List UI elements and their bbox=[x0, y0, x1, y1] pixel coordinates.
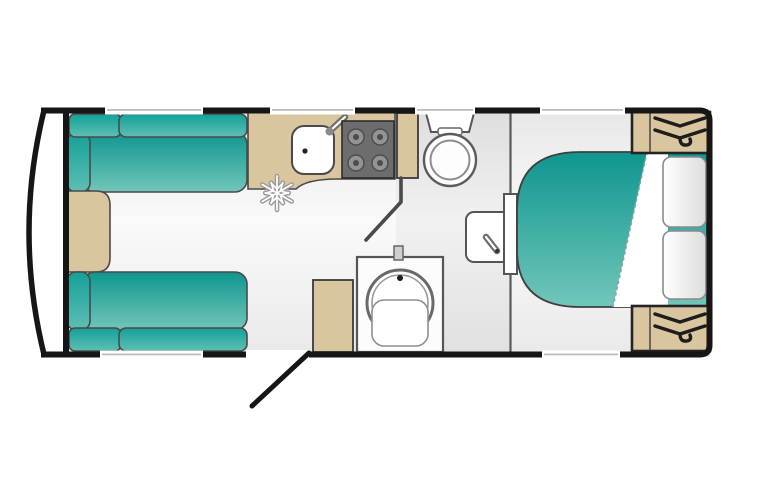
shower-mixer bbox=[394, 246, 403, 260]
sofa-top-backrest-right bbox=[119, 114, 247, 137]
pillow-bottom bbox=[663, 231, 706, 299]
floor-plan-canvas bbox=[0, 0, 760, 500]
window bbox=[540, 107, 625, 115]
bedroom-door-panel bbox=[504, 194, 517, 274]
sofa-top-armrest bbox=[67, 133, 90, 192]
wardrobe-top bbox=[632, 112, 710, 153]
entry-door-opening bbox=[246, 350, 309, 359]
shower-cubicle bbox=[357, 246, 443, 352]
sofa-top-backrest-left bbox=[69, 114, 121, 137]
front-chest bbox=[64, 191, 110, 272]
sofa-front-bottom bbox=[67, 272, 247, 351]
hob-4-burner bbox=[342, 121, 394, 178]
wardrobe-bottom bbox=[632, 306, 710, 351]
sofa-bottom-seat bbox=[83, 272, 247, 330]
window bbox=[415, 107, 475, 115]
pillow-top bbox=[663, 157, 706, 227]
shower-step bbox=[372, 300, 428, 346]
window bbox=[542, 351, 620, 359]
caravan-front-curve bbox=[29, 111, 44, 355]
washroom-tall-cupboard bbox=[397, 113, 418, 178]
sofa-bottom-backrest-left bbox=[69, 328, 121, 351]
window bbox=[100, 351, 203, 359]
sofa-front-top bbox=[67, 114, 247, 192]
entry-door-leaf bbox=[252, 353, 309, 406]
front-bulkhead-wall bbox=[63, 108, 69, 358]
window bbox=[270, 107, 355, 115]
window bbox=[105, 107, 203, 115]
toilet bbox=[424, 113, 476, 186]
caravan-floorplan bbox=[0, 0, 760, 500]
sofa-top-seat bbox=[83, 132, 247, 192]
sofa-bottom-armrest bbox=[67, 272, 90, 330]
sink-drain bbox=[302, 148, 307, 153]
sofa-bottom-backrest-right bbox=[119, 328, 247, 351]
shower-side-cabinet bbox=[313, 280, 353, 352]
toilet-bowl bbox=[431, 141, 470, 180]
shower-drain bbox=[397, 275, 403, 281]
